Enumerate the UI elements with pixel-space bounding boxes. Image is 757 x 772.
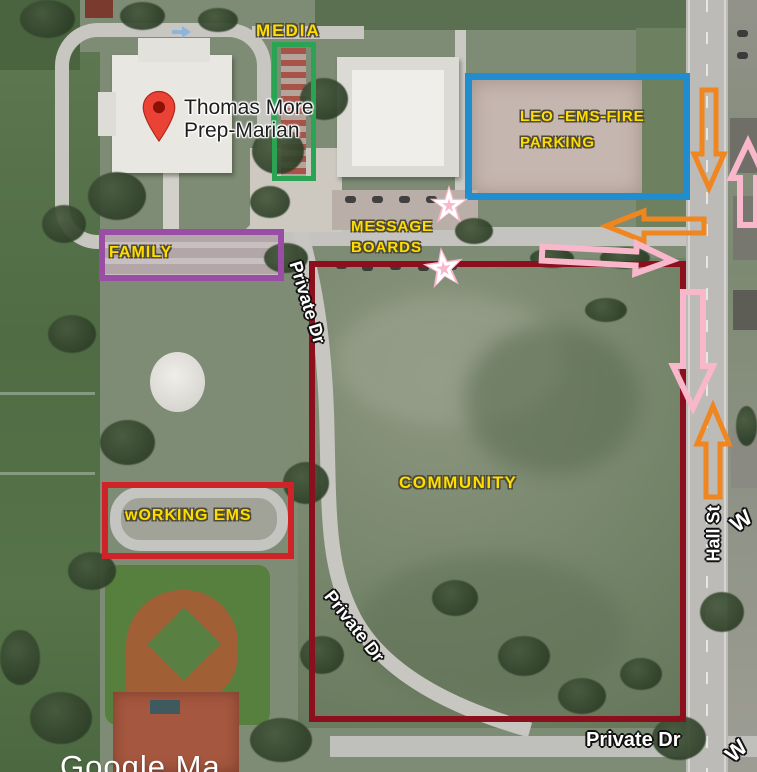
community-label: COMMUNITY bbox=[399, 473, 517, 493]
orange-left-arrow bbox=[604, 208, 708, 244]
orange-up-arrow bbox=[694, 404, 732, 500]
leo-label-line1: LEO -EMS-FIRE bbox=[520, 104, 645, 130]
message-boards-line1: MESSAGE bbox=[351, 216, 433, 237]
message-board-star-icon bbox=[428, 184, 470, 231]
pool bbox=[150, 700, 180, 714]
tree bbox=[250, 186, 290, 218]
tree bbox=[0, 630, 40, 685]
car bbox=[737, 52, 748, 59]
place-name-line1: Thomas More bbox=[184, 96, 314, 119]
tree bbox=[250, 718, 312, 762]
car bbox=[399, 196, 410, 203]
place-name-line2: Prep-Marian bbox=[184, 119, 314, 142]
tree bbox=[20, 0, 75, 38]
leo-label: LEO -EMS-FIRE PARKING bbox=[520, 104, 645, 156]
tree bbox=[30, 692, 92, 744]
tree bbox=[700, 592, 744, 632]
road-arrow-marking bbox=[170, 25, 192, 39]
pink-up-arrow-topright bbox=[728, 140, 757, 228]
google-watermark: Google Ma bbox=[60, 749, 221, 772]
tree bbox=[48, 315, 96, 353]
orange-down-arrow bbox=[692, 88, 726, 192]
working-ems-label: wORKING EMS bbox=[125, 507, 252, 525]
media-label: MEDIA bbox=[256, 21, 321, 41]
pink-down-arrow bbox=[670, 290, 716, 412]
gym-roof bbox=[352, 70, 444, 166]
message-board-star-icon bbox=[419, 243, 469, 298]
tree bbox=[88, 172, 146, 220]
tree bbox=[100, 420, 155, 465]
car bbox=[372, 196, 383, 203]
leo-label-line2: PARKING bbox=[520, 130, 645, 156]
car bbox=[737, 30, 748, 37]
small-building-top bbox=[85, 0, 113, 18]
annotated-satellite-map: MEDIA LEO -EMS-FIRE PARKING FAMILY MESSA… bbox=[0, 0, 757, 772]
tree bbox=[42, 205, 86, 243]
dome-building bbox=[150, 352, 205, 412]
place-name-label: Thomas More Prep-Marian bbox=[184, 96, 314, 142]
family-label: FAMILY bbox=[109, 244, 172, 262]
house-east bbox=[733, 290, 757, 330]
hall-st-label: Hall St bbox=[704, 494, 725, 574]
map-pin-icon bbox=[141, 90, 177, 149]
tree bbox=[198, 8, 238, 32]
pink-right-arrow bbox=[539, 237, 675, 278]
school-wing-north bbox=[138, 38, 210, 62]
school-wing-west bbox=[98, 92, 116, 136]
tree bbox=[120, 2, 165, 30]
private-dr-label-bottom: Private Dr bbox=[586, 729, 681, 752]
tree bbox=[736, 406, 757, 446]
car bbox=[345, 196, 356, 203]
